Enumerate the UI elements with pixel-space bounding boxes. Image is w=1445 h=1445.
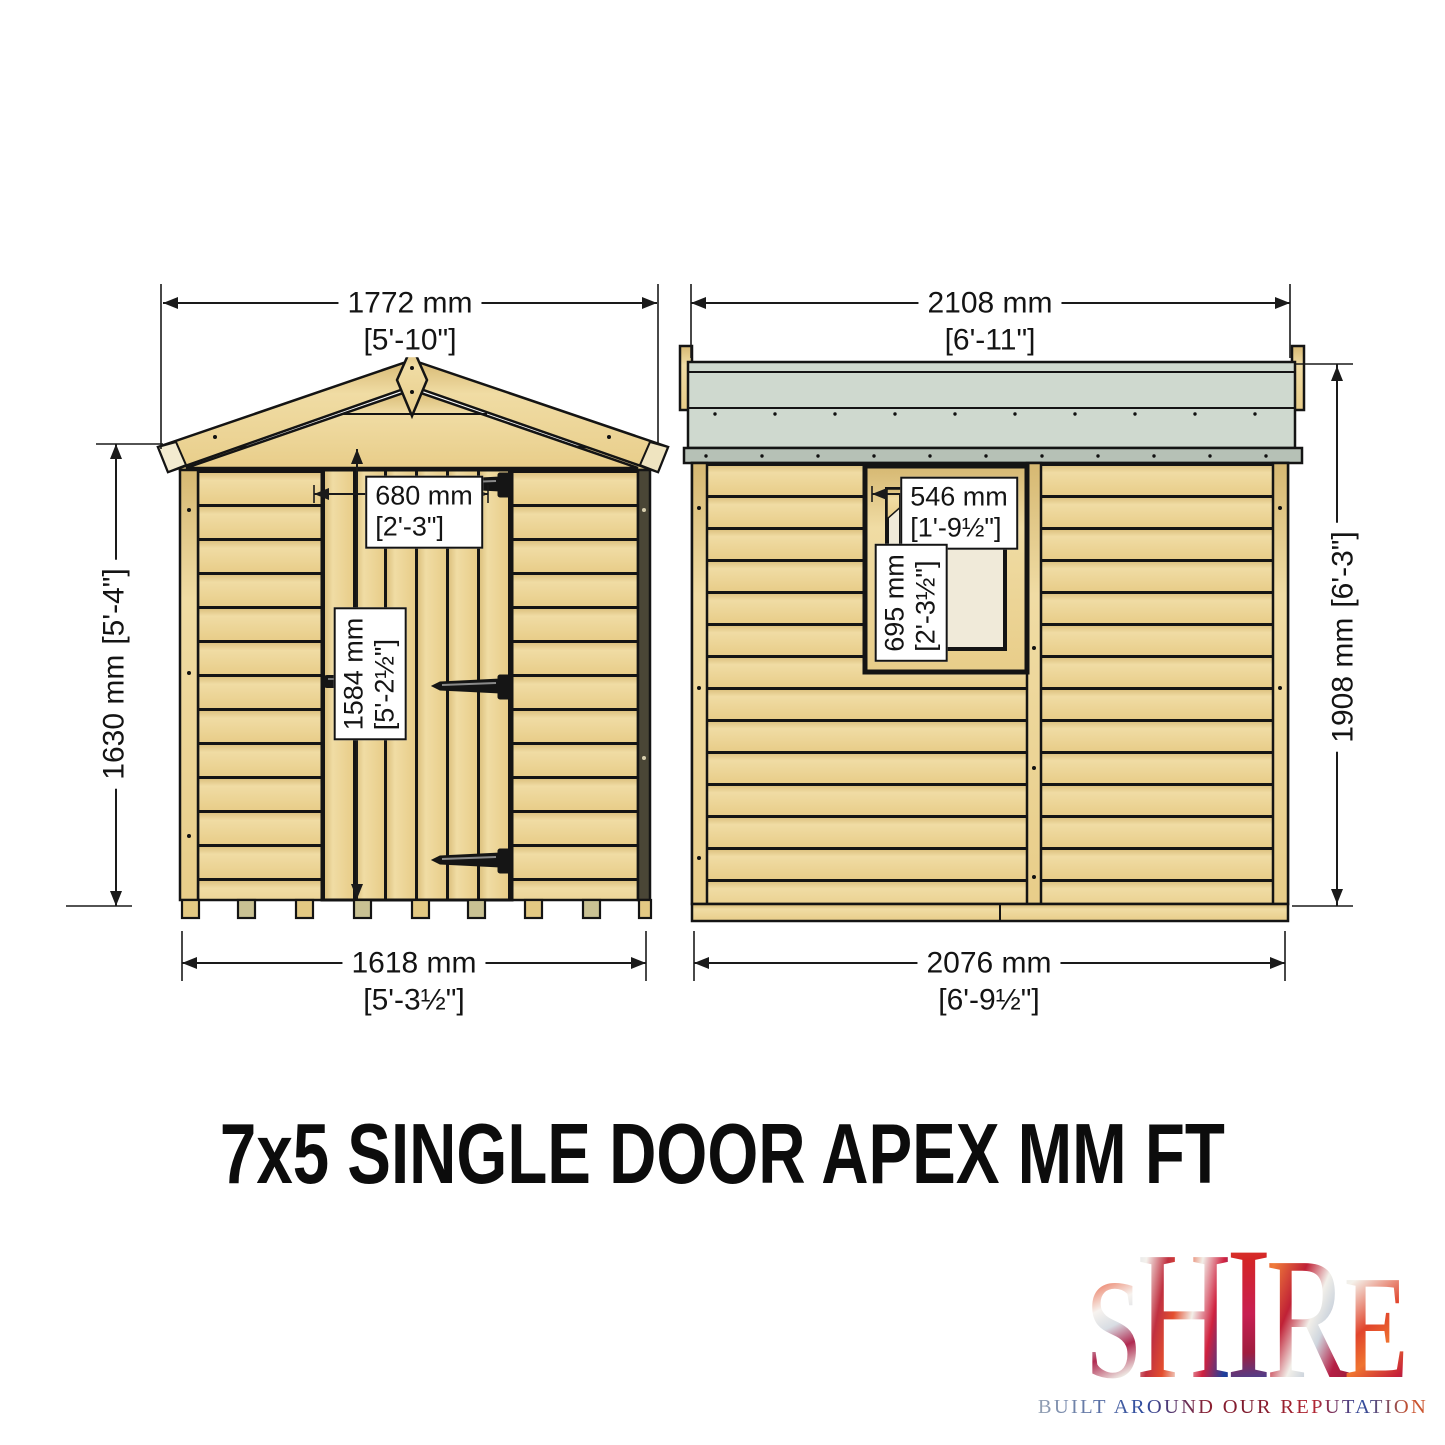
logo-letter: S [1085, 1250, 1142, 1408]
logo-letter: R [1266, 1222, 1350, 1415]
logo-letter: E [1344, 1246, 1409, 1410]
front-width-top-ft-label: [5'-10"] [354, 323, 465, 357]
front-width-top-mm-label: 1772 mm [338, 286, 481, 320]
foot [525, 900, 542, 918]
roof-felt [688, 362, 1295, 448]
window-height-label: 695 mm [2'-3½"] [875, 544, 948, 662]
front-width-bottom-mm-label: 1618 mm [342, 946, 485, 980]
side-elevation-drawing [670, 338, 1330, 938]
corner-trim-back [1273, 463, 1288, 904]
front-left-panel [198, 470, 322, 900]
foot [468, 900, 485, 918]
side-roof [680, 346, 1304, 463]
side-width-top-mm-label: 2108 mm [918, 286, 1061, 320]
base-rail [692, 904, 1288, 921]
side-width-top-ft-label: [6'-11"] [936, 323, 1045, 357]
foundation-feet [182, 900, 651, 918]
front-right-panel [512, 470, 638, 900]
corner-trim-right [638, 470, 650, 900]
side-width-bottom-ft-label: [6'-9½"] [929, 983, 1048, 1017]
door-height-label: 1584 mm [5'-2½"] [334, 608, 407, 741]
foot [583, 900, 600, 918]
logo-letter: H [1137, 1214, 1232, 1417]
front-gable [158, 346, 668, 472]
foot [354, 900, 371, 918]
shire-logo: SHIRE BUILT AROUND OUR REPUTATION [1032, 1238, 1434, 1419]
front-elevation-drawing [140, 338, 680, 938]
corner-trim-front [692, 463, 707, 904]
side-width-bottom-mm-label: 2076 mm [917, 946, 1060, 980]
foot [412, 900, 429, 918]
side-height-label: 1908 mm[6'-3"] [1326, 522, 1360, 751]
foot [639, 900, 651, 918]
window-width-label: 546 mm [1'-9½"] [900, 477, 1018, 550]
diagram-title: 7x5 SINGLE DOOR APEX MM FT [166, 1106, 1279, 1204]
foot [296, 900, 313, 918]
foot [182, 900, 199, 918]
foot [238, 900, 255, 918]
shire-logo-wordmark: SHIRE [1088, 1238, 1377, 1390]
shed-dimension-diagram: 1772 mm [5'-10"] 1630 mm[5'-4"] 680 mm [… [0, 0, 1445, 1445]
front-width-bottom-ft-label: [5'-3½"] [354, 983, 473, 1017]
front-height-label: 1630 mm[5'-4"] [97, 559, 131, 788]
door-width-label: 680 mm [2'-3"] [365, 476, 483, 549]
